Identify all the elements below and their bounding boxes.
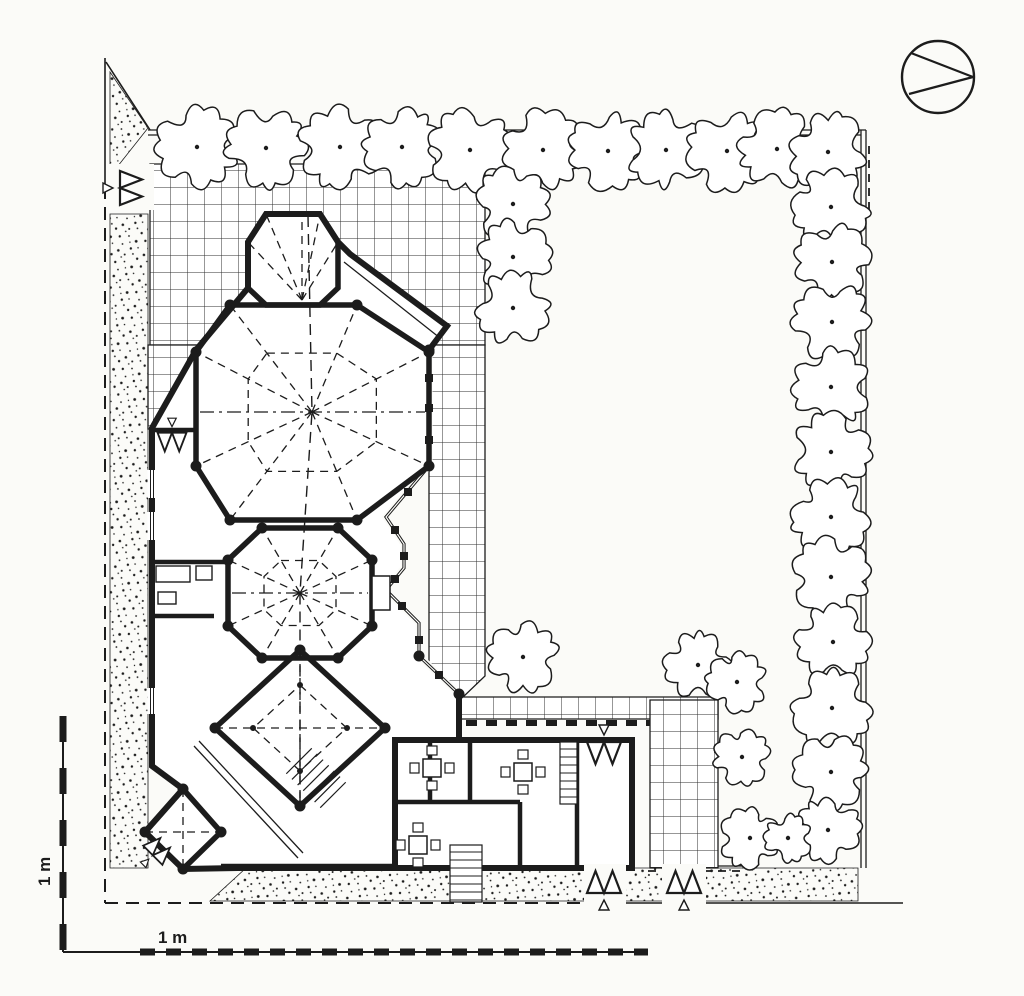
scale-label-vertical: 1 m bbox=[35, 857, 54, 886]
site-plan-drawing: 1 m 1 m bbox=[0, 0, 1024, 996]
site-plan-page: 1 m 1 m bbox=[0, 0, 1024, 996]
scale-label-horizontal: 1 m bbox=[158, 928, 187, 947]
